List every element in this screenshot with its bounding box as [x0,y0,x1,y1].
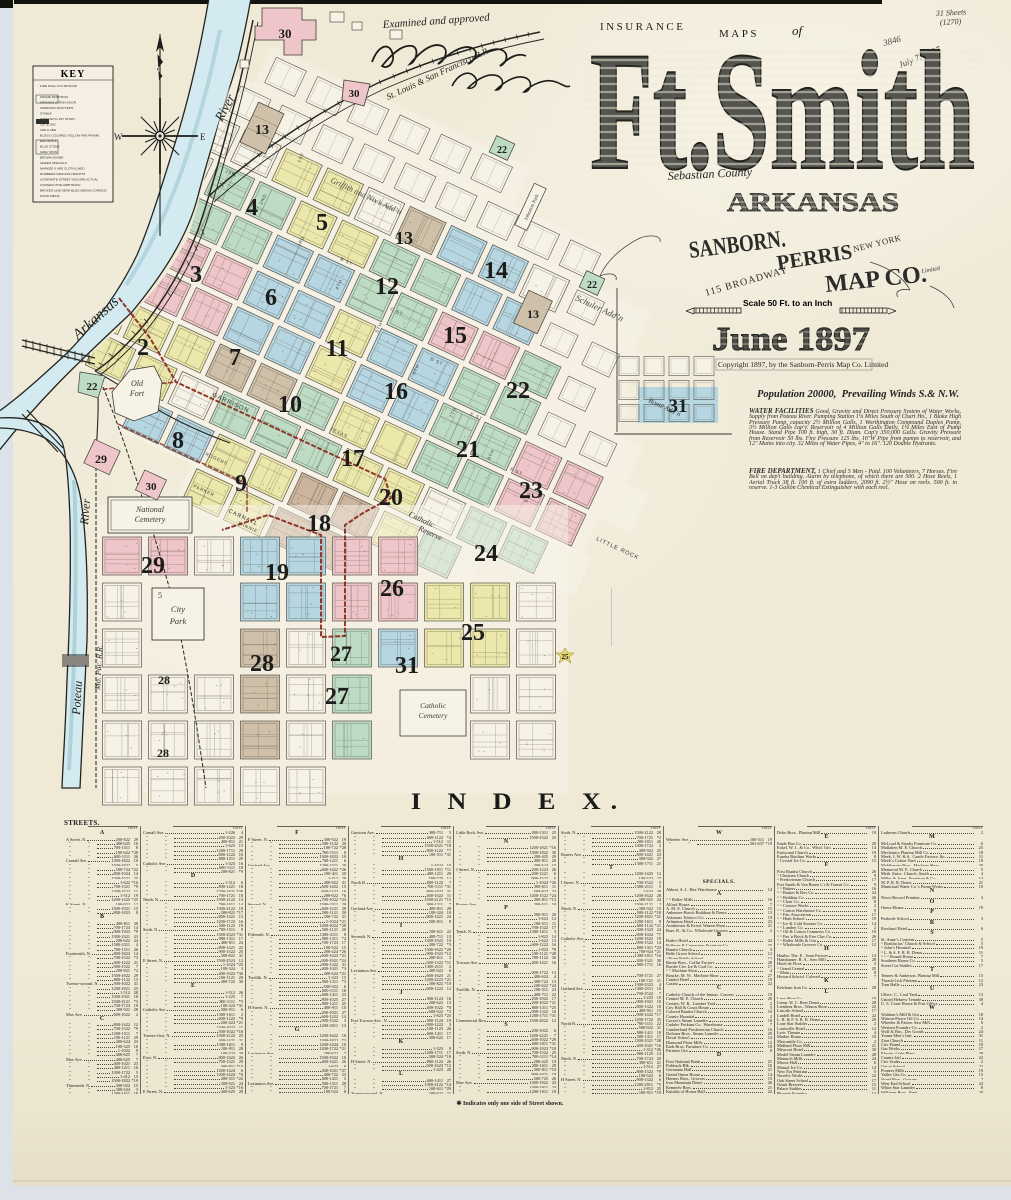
svg-text:22: 22 [497,145,507,156]
svg-text:CONSECUTIVE ARBITRARY: CONSECUTIVE ARBITRARY [40,183,81,187]
svg-text:KEY: KEY [61,69,86,80]
svg-text:22: 22 [587,280,597,291]
svg-text:NEW YORK: NEW YORK [852,232,902,254]
svg-text:22: 22 [506,378,530,404]
svg-text:30: 30 [146,481,158,493]
svg-text:29: 29 [141,553,165,579]
svg-text:25: 25 [562,653,570,661]
svg-text:Copyright 1897, by the Sanborn: Copyright 1897, by the Sanborn-Perris Ma… [718,360,888,369]
svg-text:MAP CO.: MAP CO. [824,261,928,298]
svg-text:5: 5 [316,210,328,236]
svg-text:FRAME PARTITION: FRAME PARTITION [40,95,68,99]
svg-text:STABLE: STABLE [40,112,52,116]
svg-text:31: 31 [395,653,419,679]
svg-text:WINDOWS SHUTTERS: WINDOWS SHUTTERS [40,106,73,110]
svg-text:31: 31 [669,396,688,417]
svg-text:Cemetery: Cemetery [135,515,166,524]
svg-text:OPENING & IRON DOOR: OPENING & IRON DOOR [40,101,77,105]
svg-text:16: 16 [384,379,408,405]
svg-text:30: 30 [349,88,361,100]
svg-text:28: 28 [157,746,169,760]
svg-text:June 1897: June 1897 [712,321,870,358]
svg-text:2ND & 3RD: 2ND & 3RD [40,128,57,132]
svg-text:30: 30 [279,26,292,41]
svg-text:Fort: Fort [129,389,145,398]
svg-text:115 BROADWAY: 115 BROADWAY [704,265,790,299]
svg-text:Old: Old [131,379,144,388]
svg-text:Poteau: Poteau [69,680,85,716]
svg-text:NUMBERS INDICATE HEIGHTS: NUMBERS INDICATE HEIGHTS [40,172,85,176]
svg-text:3: 3 [190,262,202,288]
svg-text:9: 9 [235,471,247,497]
svg-text:GREEN SPECIALS: GREEN SPECIALS [40,161,67,165]
svg-text:10: 10 [278,392,302,418]
svg-text:6: 6 [265,285,277,311]
svg-text:BROKEN LINE NEAR BLDG MEANS CO: BROKEN LINE NEAR BLDG MEANS CORNICE [40,189,107,193]
svg-text:GREY IRON: GREY IRON [40,150,57,154]
svg-text:15: 15 [443,323,467,349]
svg-text:Ft.Smith: Ft.Smith [590,17,975,205]
svg-text:17: 17 [341,446,365,472]
svg-text:18: 18 [307,511,331,537]
svg-text:25: 25 [461,620,485,646]
svg-text:Scale 50 Ft. to an Inch: Scale 50 Ft. to an Inch [743,298,832,308]
svg-text:FIRE WALL 6 IN AB ROOF: FIRE WALL 6 IN AB ROOF [40,84,77,88]
svg-text:13: 13 [255,123,269,138]
svg-text:28: 28 [250,651,274,677]
svg-text:BLDGS COLORED YELLOW ARE FRAME: BLDGS COLORED YELLOW ARE FRAME [40,134,99,138]
svg-text:BLUE STONE: BLUE STONE [40,145,60,149]
svg-text:Park: Park [169,616,187,626]
svg-text:13: 13 [395,228,413,248]
svg-text:13: 13 [527,307,539,321]
svg-text:River: River [77,498,93,526]
svg-text:Catholic: Catholic [420,701,447,710]
svg-text:12: 12 [375,274,399,300]
svg-text:27: 27 [330,641,352,666]
svg-text:26: 26 [380,576,404,602]
svg-text:SANBORN.: SANBORN. [688,226,787,264]
svg-text:23: 23 [519,478,543,504]
svg-text:27: 27 [325,684,349,710]
svg-text:Examined and approved: Examined and approved [381,12,490,32]
svg-text:4: 4 [246,195,258,221]
svg-text:5: 5 [158,591,162,600]
svg-text:W: W [114,132,123,142]
svg-text:28: 28 [158,673,170,687]
svg-text:29: 29 [95,452,107,466]
svg-text:RED BRICK: RED BRICK [40,139,58,143]
svg-text:Cemetery: Cemetery [419,711,448,720]
svg-text:MARKED X ARE CLOTH LINED: MARKED X ARE CLOTH LINED [40,167,85,171]
svg-text:SOLID METAL: SOLID METAL [40,194,61,198]
svg-text:2: 2 [137,335,149,361]
svg-text:8: 8 [172,428,184,454]
svg-text:14: 14 [484,258,508,284]
svg-text:E: E [200,132,206,142]
svg-text:7: 7 [229,345,241,371]
svg-text:LITTLE ROCK: LITTLE ROCK [595,536,640,561]
svg-text:National: National [135,505,165,514]
svg-text:ALTERNATE STREET NOS ARE ACTUA: ALTERNATE STREET NOS ARE ACTUAL [40,178,99,182]
svg-text:City: City [171,604,185,614]
svg-text:21: 21 [456,437,480,463]
svg-text:22: 22 [87,381,99,393]
svg-text:BROWN ADOBE: BROWN ADOBE [40,156,63,160]
svg-text:11: 11 [326,336,349,362]
svg-text:19: 19 [265,560,289,586]
svg-text:24: 24 [474,541,498,567]
svg-text:20: 20 [379,485,403,511]
